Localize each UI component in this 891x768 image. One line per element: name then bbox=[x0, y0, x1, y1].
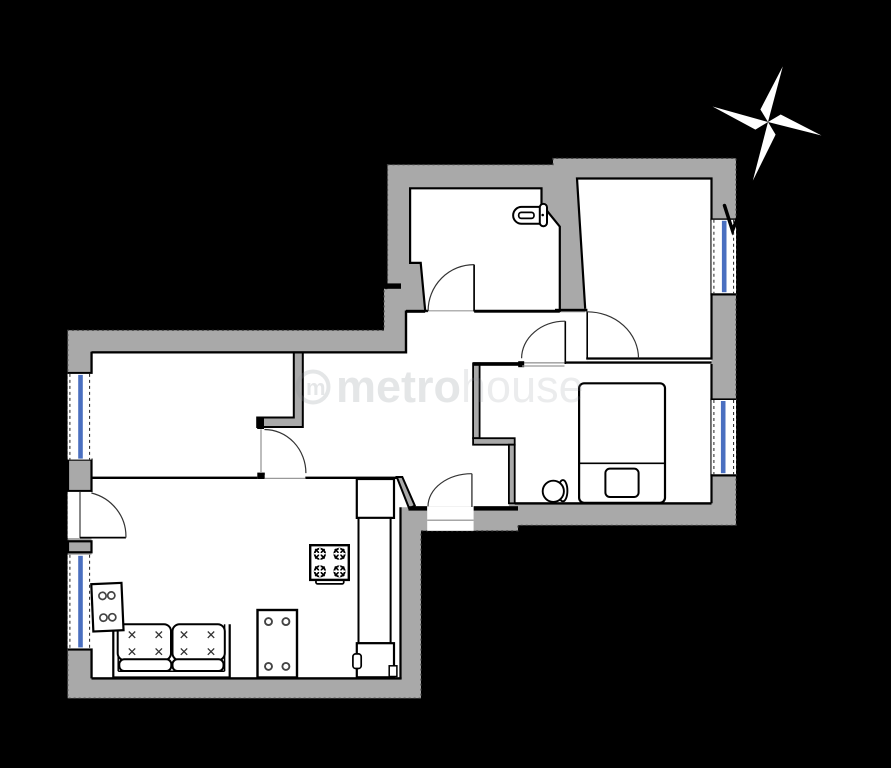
svg-text:m: m bbox=[306, 375, 326, 400]
svg-text:metrohouse: metrohouse bbox=[336, 361, 584, 412]
